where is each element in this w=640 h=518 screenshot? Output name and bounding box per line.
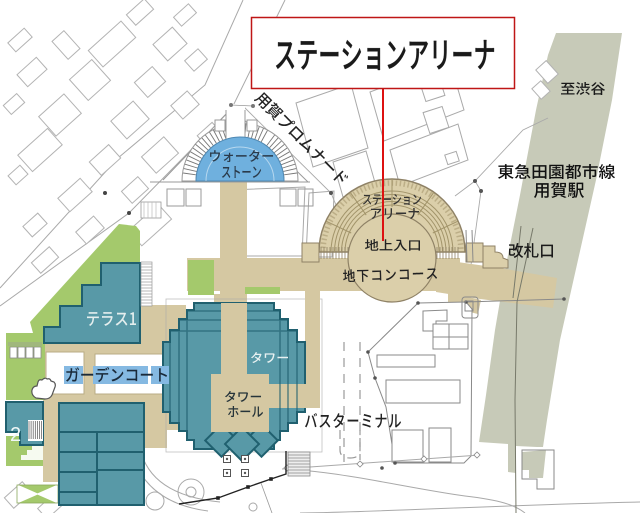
svg-text:2: 2: [10, 424, 21, 446]
